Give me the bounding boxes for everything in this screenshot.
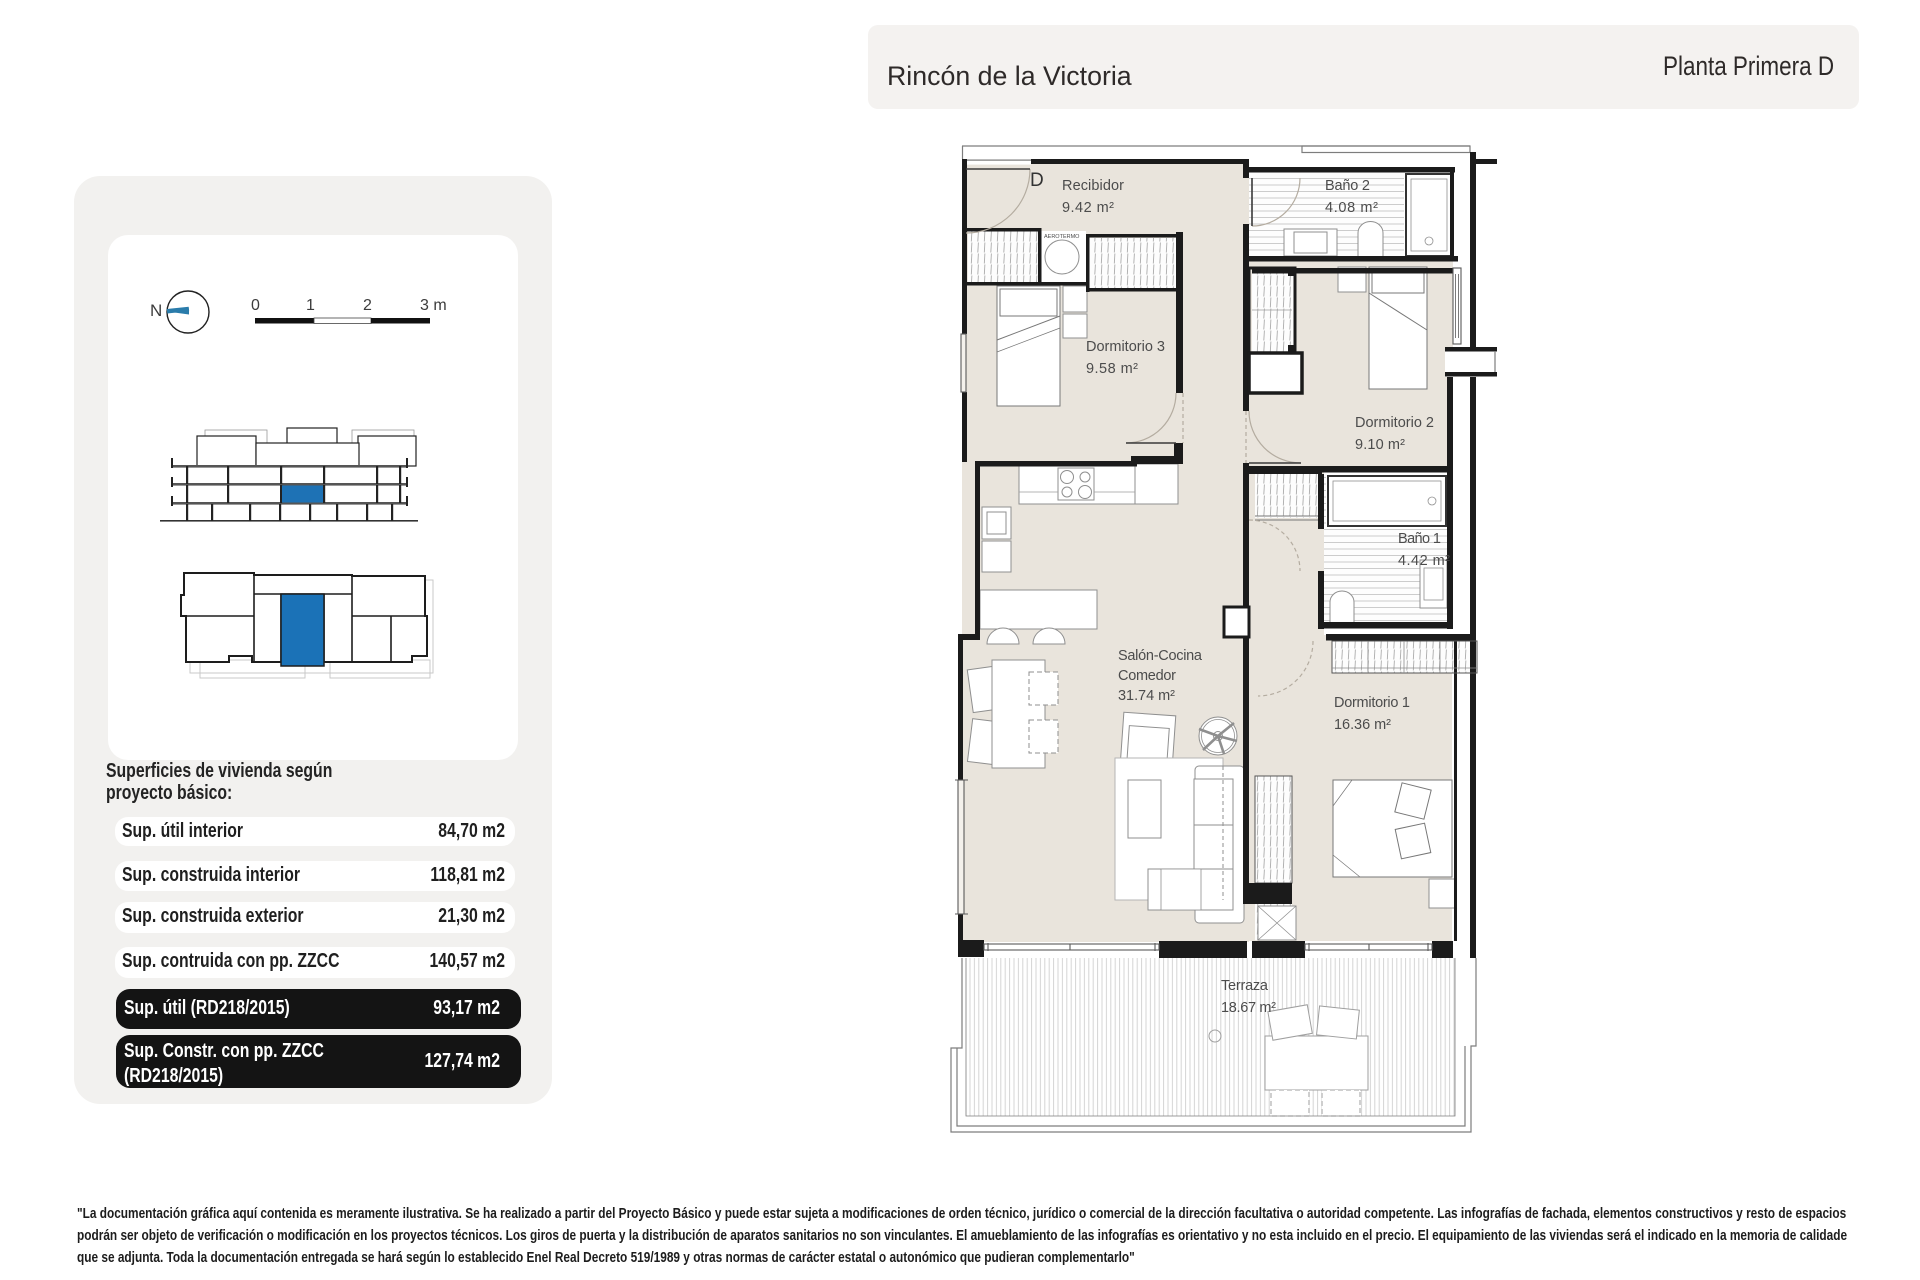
svg-text:4.08 m²: 4.08 m²	[1325, 200, 1378, 216]
svg-text:Baño 1: Baño 1	[1398, 531, 1441, 547]
svg-text:Salón-Cocina: Salón-Cocina	[1118, 648, 1203, 664]
svg-text:1: 1	[306, 297, 315, 314]
svg-text:9.10 m²: 9.10 m²	[1355, 437, 1405, 453]
svg-text:3 m: 3 m	[420, 297, 447, 314]
svg-text:D: D	[1030, 170, 1044, 191]
svg-text:Dormitorio 3: Dormitorio 3	[1086, 339, 1165, 355]
svg-text:Recibidor: Recibidor	[1062, 178, 1124, 194]
svg-text:18.67 m²: 18.67 m²	[1221, 1000, 1276, 1016]
svg-text:N: N	[150, 301, 162, 320]
svg-text:4.42 m²: 4.42 m²	[1398, 553, 1450, 569]
svg-text:Terraza: Terraza	[1221, 978, 1269, 994]
svg-text:0: 0	[251, 297, 260, 314]
svg-text:Baño 2: Baño 2	[1325, 178, 1370, 194]
svg-text:Dormitorio 2: Dormitorio 2	[1355, 415, 1434, 431]
svg-text:Comedor: Comedor	[1118, 668, 1176, 684]
svg-text:AEROTERMO: AEROTERMO	[1044, 234, 1080, 240]
svg-text:9.42 m²: 9.42 m²	[1062, 200, 1114, 216]
svg-text:2: 2	[363, 297, 372, 314]
svg-text:Dormitorio 1: Dormitorio 1	[1334, 695, 1410, 711]
svg-text:9.58 m²: 9.58 m²	[1086, 361, 1138, 377]
svg-text:16.36 m²: 16.36 m²	[1334, 717, 1391, 733]
svg-text:31.74 m²: 31.74 m²	[1118, 688, 1175, 704]
